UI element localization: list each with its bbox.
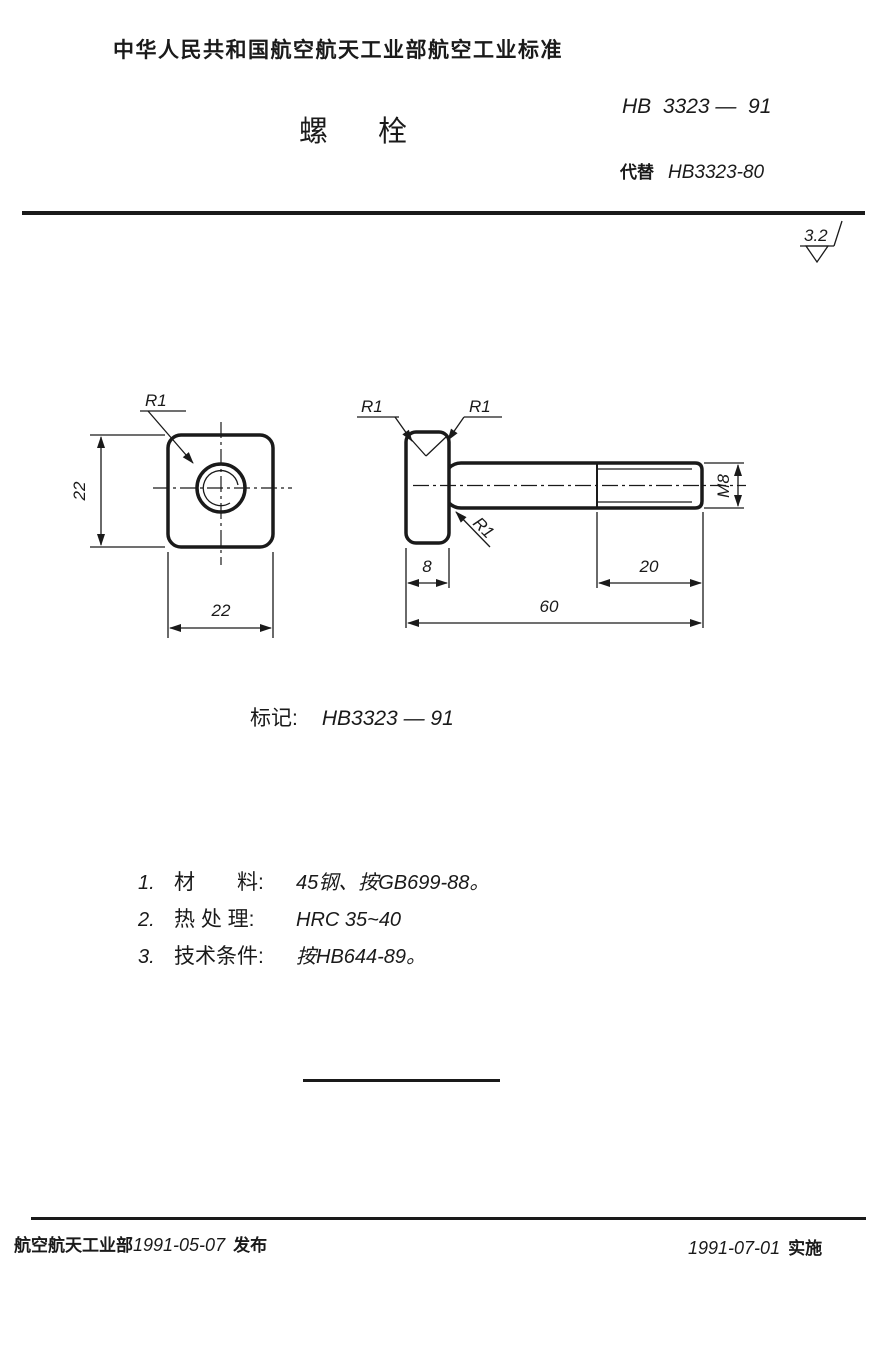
supersedes-label: 代替 [620, 163, 654, 182]
marking-label: 标记: [250, 707, 298, 730]
note-value: 按HB644-89。 [296, 940, 426, 969]
side-radius-right-leader [448, 417, 464, 440]
mid-divider [303, 1079, 500, 1082]
side-head-outline [406, 432, 449, 543]
supersedes-number: HB3323-80 [668, 162, 764, 183]
note-number: 3. [138, 946, 174, 969]
standard-number: HB 3323 — 91 [622, 95, 771, 119]
thread-spec-label: M8 [714, 474, 733, 498]
standard-document-page: 中华人民共和国航空航天工业部航空工业标准 螺栓 HB 3323 — 91 代替H… [0, 0, 880, 1351]
head-thickness-dimension: 8 [422, 557, 432, 576]
fillet-radius-label: R1 [469, 513, 498, 542]
standard-header: 中华人民共和国航空航天工业部航空工业标准 [113, 34, 563, 64]
roughness-slash [834, 221, 842, 246]
side-radius-left-label: R1 [361, 397, 383, 416]
marking-value: HB3323 — 91 [322, 707, 454, 730]
front-height-dimension: 22 [70, 481, 89, 501]
front-width-dimension: 22 [211, 601, 231, 620]
note-row: 3. 技术条件: 按HB644-89。 [138, 940, 489, 977]
footer-issue-action: 发布 [233, 1236, 267, 1255]
surface-roughness-symbol: 3.2 [780, 205, 880, 275]
front-corner-radius-label: R1 [145, 391, 167, 410]
footer-issue-line: 航空航天工业部1991-05-07发布 [14, 1231, 267, 1256]
front-radius-leader [148, 411, 193, 463]
part-title: 螺栓 [299, 108, 457, 150]
note-value: 45钢、按GB699-88。 [296, 866, 489, 895]
front-view: R1 22 22 [70, 391, 292, 638]
note-row: 1. 材 料: 45钢、按GB699-88。 [138, 866, 489, 903]
notes-list: 1. 材 料: 45钢、按GB699-88。 2. 热 处 理: HRC 35~… [138, 866, 489, 977]
footer-effective-action: 实施 [788, 1239, 822, 1258]
bolt-technical-drawing: R1 22 22 R1 R1 R1 [0, 360, 880, 660]
roughness-value: 3.2 [804, 226, 828, 245]
total-length-dimension: 60 [540, 597, 559, 616]
footer-divider [31, 1217, 866, 1220]
note-value: HRC 35~40 [296, 909, 401, 932]
marking-row: 标记:HB3323 — 91 [250, 702, 454, 732]
side-radius-right-label: R1 [469, 397, 491, 416]
footer-issue-date: 1991-05-07 [133, 1235, 225, 1255]
note-row: 2. 热 处 理: HRC 35~40 [138, 903, 489, 940]
note-label: 热 处 理: [174, 903, 296, 933]
footer-effective-line: 1991-07-01实施 [688, 1234, 822, 1259]
note-number: 1. [138, 872, 174, 895]
thread-length-dimension: 20 [639, 557, 659, 576]
side-view: R1 R1 R1 8 20 60 M8 [357, 397, 746, 628]
header-divider [22, 211, 865, 215]
roughness-triangle-icon [806, 246, 828, 262]
supersedes-row: 代替HB3323-80 [620, 158, 764, 184]
footer-issuer: 航空航天工业部 [14, 1236, 133, 1255]
note-label: 材 料: [174, 866, 296, 896]
footer-effective-date: 1991-07-01 [688, 1238, 780, 1258]
side-head-corner-lines [409, 437, 446, 456]
note-label: 技术条件: [174, 940, 296, 970]
side-radius-left-leader [395, 417, 412, 441]
note-number: 2. [138, 909, 174, 932]
